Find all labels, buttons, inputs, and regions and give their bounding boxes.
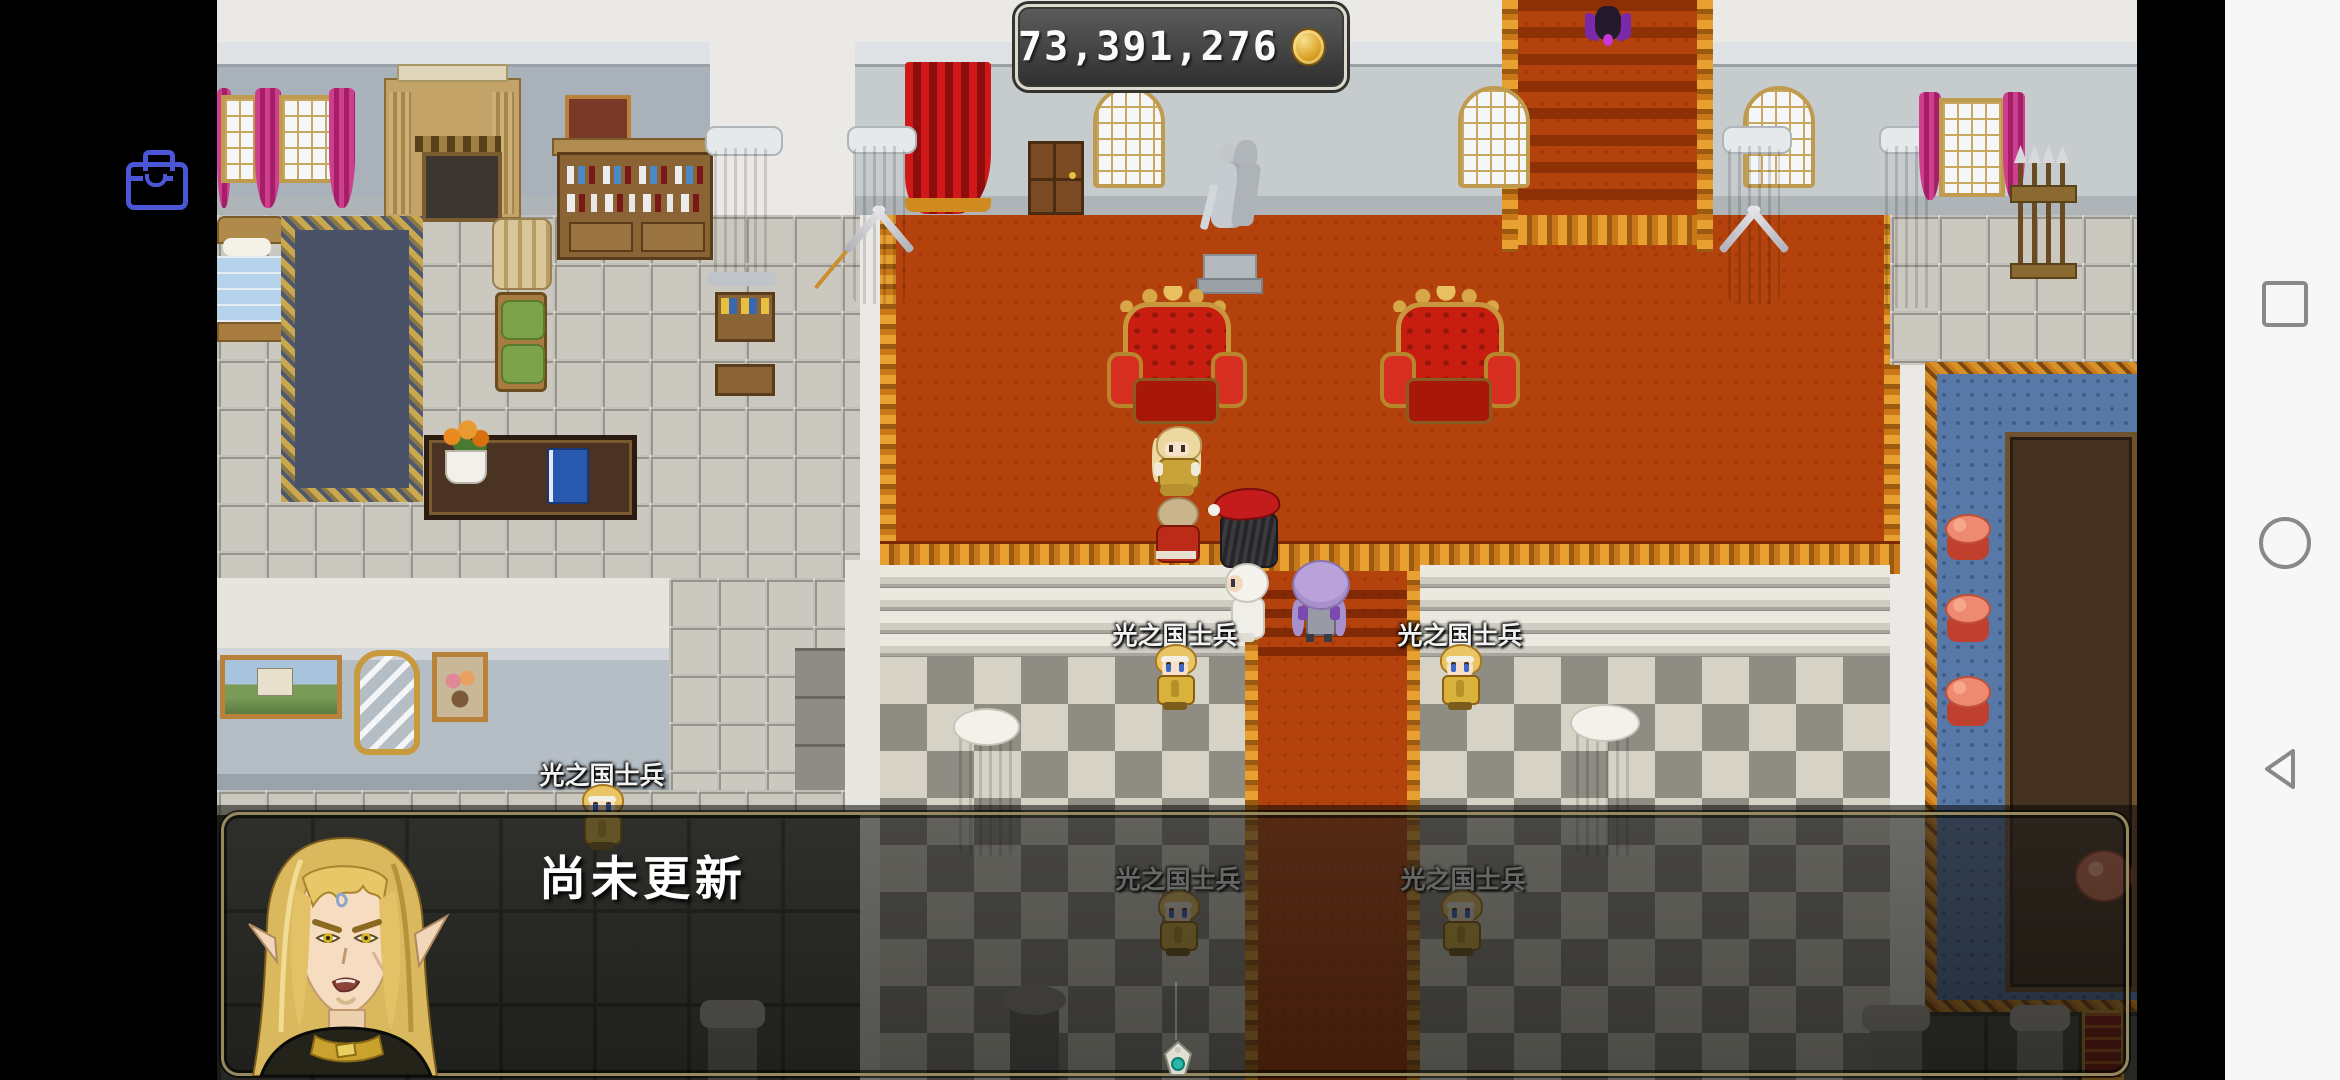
android-nav-bar xyxy=(2225,0,2340,1080)
spear-rack xyxy=(2010,145,2073,285)
phone-screen: 光之国士兵 光之国士兵 光之国士兵 光之国士兵 光之国士兵 xyxy=(0,0,2340,1080)
red-curtain xyxy=(905,62,991,214)
marble-column xyxy=(1728,146,1780,304)
wooden-door xyxy=(1028,141,1084,215)
npc-red-hat xyxy=(1212,486,1280,570)
marble-column xyxy=(853,146,905,304)
gold-window: 73,391,276 xyxy=(1015,4,1347,90)
door-opening xyxy=(422,152,502,222)
npc-guard xyxy=(1437,644,1483,712)
scroll-bundle xyxy=(492,218,552,290)
knight-statue xyxy=(1195,138,1262,292)
dialog-continue-icon[interactable] xyxy=(1161,1040,1195,1078)
gold-amount: 73,391,276 xyxy=(1018,24,1279,70)
right-window xyxy=(1939,98,2005,197)
flower-pot xyxy=(445,450,487,484)
pink-stool xyxy=(1945,514,1991,564)
blonde-elf-portrait xyxy=(233,830,457,1076)
bed-blanket xyxy=(217,256,281,322)
bedroom-window xyxy=(279,95,335,183)
game-viewport[interactable]: 光之国士兵 光之国士兵 光之国士兵 光之国士兵 光之国士兵 xyxy=(217,0,2137,1080)
npc-purple-hair xyxy=(1290,560,1348,644)
pink-stool xyxy=(1945,594,1991,646)
back-button-triangle-icon[interactable] xyxy=(2259,745,2307,793)
recents-button-square-icon[interactable] xyxy=(2262,281,2308,327)
bedroom-window xyxy=(221,95,257,183)
dialog-text: 尚未更新 xyxy=(539,840,747,909)
blue-book xyxy=(547,448,589,504)
curtain xyxy=(255,88,281,208)
arched-window xyxy=(1458,86,1530,188)
gold-coin-icon xyxy=(1291,28,1326,66)
arched-window xyxy=(1093,86,1165,188)
throne xyxy=(1107,290,1239,426)
throne xyxy=(1380,290,1512,426)
curtain xyxy=(1919,92,1941,200)
pink-stool xyxy=(1945,676,1991,730)
curtain xyxy=(329,88,355,208)
bed-pillow xyxy=(223,238,271,256)
npc-princess xyxy=(1150,426,1203,498)
npc-red-robe xyxy=(1152,497,1200,564)
npc-guard xyxy=(1152,644,1198,712)
npc-purple-creature xyxy=(1585,0,1631,54)
game-menu-button[interactable] xyxy=(126,150,186,208)
dialog-portrait xyxy=(233,830,457,1076)
home-button-circle-icon[interactable] xyxy=(2259,517,2311,569)
flower-picture xyxy=(432,652,488,722)
marble-column xyxy=(714,148,770,278)
crate xyxy=(715,364,775,396)
flower-bouquet xyxy=(439,418,491,452)
gold-mirror xyxy=(354,650,420,755)
